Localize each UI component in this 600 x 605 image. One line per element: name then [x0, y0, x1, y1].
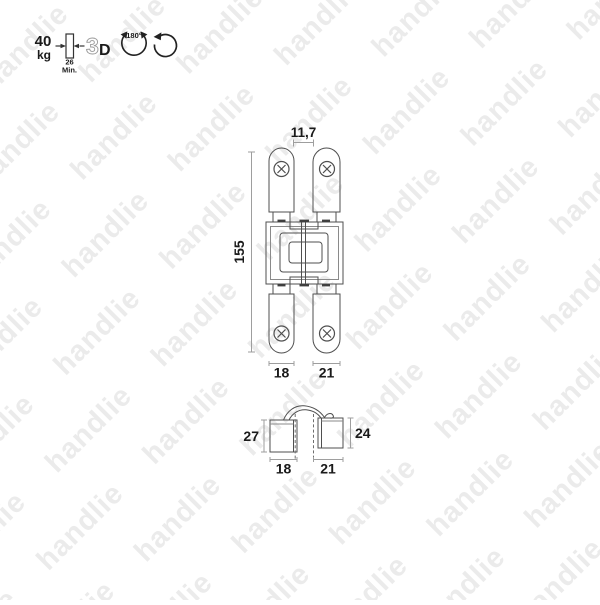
- dim-depth-left: 27: [243, 428, 259, 444]
- screw-bottom-right: [320, 326, 335, 341]
- dim-width-right: 21: [320, 461, 336, 477]
- right-leaf-bottom: [313, 294, 340, 353]
- dim-depth-right: 24: [355, 425, 371, 441]
- section-view-dimensions: 27 24 18 21: [243, 418, 370, 477]
- adjustment-digit: 3: [86, 33, 99, 59]
- front-view: [266, 148, 343, 353]
- adjustment-3d-icon: 3 D: [86, 33, 111, 59]
- left-leaf-top: [269, 148, 294, 212]
- opening-angle-value: 180°: [126, 31, 142, 40]
- adjustment-letter: D: [99, 42, 111, 59]
- load-capacity-label: 40 kg: [35, 33, 52, 62]
- left-leaf-bottom: [269, 294, 294, 353]
- mechanism-outer-frame: [266, 222, 343, 284]
- load-unit: kg: [37, 48, 51, 62]
- right-leaf-top: [313, 148, 340, 212]
- hinge-spec-sheet: { "colors": { "background": "#ffffff", "…: [0, 0, 600, 600]
- screws: [274, 162, 335, 342]
- section-view: [270, 406, 343, 459]
- link-arm-outer: [280, 233, 328, 272]
- hidden-edge-lines: [295, 414, 313, 459]
- technical-drawing: 40 kg 26 Min. 3 D 180°: [0, 0, 600, 600]
- screw-top-left: [274, 162, 289, 177]
- drawing-canvas: 40 kg 26 Min. 3 D 180°: [0, 0, 600, 600]
- opening-angle-icon: 180°: [121, 31, 148, 55]
- pivot-block-bottom: [290, 277, 318, 284]
- rotation-icon: [154, 32, 177, 56]
- section-left-block: [270, 420, 297, 452]
- door-thickness-icon: [56, 34, 85, 58]
- dim-leaf-right: 21: [319, 365, 335, 381]
- door-leaf-shape: [66, 34, 74, 58]
- door-min-thickness-label: Min.: [62, 66, 77, 75]
- dim-height: 155: [231, 240, 247, 264]
- screw-top-right: [320, 162, 335, 177]
- spec-icons: 40 kg 26 Min. 3 D 180°: [35, 31, 177, 75]
- dim-width-left: 18: [276, 461, 292, 477]
- screw-bottom-left: [274, 326, 289, 341]
- hinge-mechanism: [266, 220, 343, 287]
- pivot-block-top: [290, 222, 318, 229]
- dim-leaf-left: 18: [274, 365, 290, 381]
- dim-gap-top: 11,7: [291, 125, 317, 140]
